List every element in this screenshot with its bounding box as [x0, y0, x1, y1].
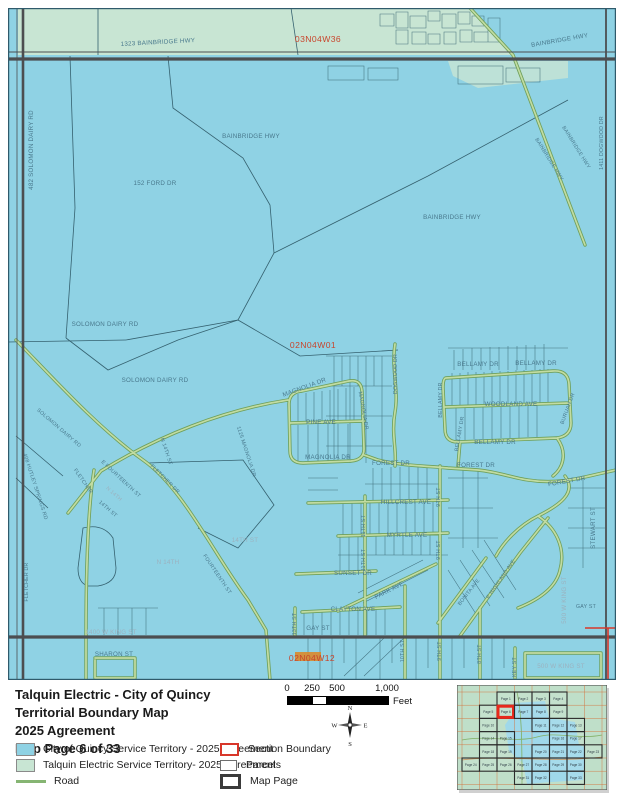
compass-rose: N S E W [330, 704, 370, 748]
street-label: BELLAMY DR [515, 360, 557, 367]
compass-s: S [348, 741, 352, 748]
inset-page-label: Page 12 [552, 723, 564, 727]
street-label: 8TH ST [477, 644, 483, 664]
street-label: WOODLAND AVE [485, 401, 538, 408]
street-label: MAGNOLIA DR [305, 454, 351, 461]
inset-page-label: Page 1 [501, 697, 511, 701]
inset-page-label: Page 3 [536, 697, 546, 701]
street-label: SOLOMON DAIRY RD [122, 377, 189, 384]
talquin-territory-swatch [16, 759, 35, 772]
address-label: 1400 W KING ST [85, 629, 136, 636]
compass-hub [348, 723, 352, 727]
legend-label: Parcels [246, 759, 281, 771]
address-label: 152 FORD DR [134, 180, 177, 187]
road-line-swatch [16, 780, 46, 783]
inset-page-label: Page 5 [483, 710, 493, 714]
scale-unit: Feet [393, 696, 412, 707]
street-label: MYRTLE AVE [387, 532, 428, 539]
street-label: BAINBRIDGE HWY [222, 133, 280, 140]
inset-page-label: Page 19 [500, 750, 512, 754]
inset-page-label: Page 4 [553, 697, 563, 701]
parcels-swatch [220, 760, 237, 771]
street-label: HILLCREST AVE [381, 499, 431, 506]
street-label: BELLAMY DR [474, 439, 516, 446]
inset-page-label: Page 31 [517, 776, 529, 780]
street-label: 9TH ST [436, 540, 442, 560]
street-label: 14TH ST [232, 537, 259, 544]
inset-page-label: Page 18 [482, 750, 494, 754]
title-line-3: 2025 Agreement [15, 722, 211, 740]
scale-tick: 1,000 [375, 683, 399, 694]
inset-page-label: Page 32 [535, 776, 547, 780]
legend-item-section-boundary: Section Boundary [220, 742, 331, 756]
inset-page-label: Page 28 [535, 763, 547, 767]
inset-page-label: Page 17 [570, 737, 582, 741]
inset-page-label: Page 10 [482, 723, 494, 727]
street-label: SUNSET DR [334, 570, 372, 577]
street-label: SOLOMON DAIRY RD [72, 321, 139, 328]
street-label: STEWART ST [590, 507, 597, 549]
inset-page-label: Page 13 [570, 723, 582, 727]
inset-page-label: Page 16 [552, 737, 564, 741]
street-label: 9TH ST [436, 487, 442, 507]
inset-page-label: Page 6 [501, 710, 511, 714]
street-label: GAY ST [306, 625, 330, 632]
street-label: 10TH ST [400, 639, 406, 662]
compass-w: W [331, 723, 338, 730]
title-line-1: Talquin Electric - City of Quincy [15, 686, 211, 704]
legend-label: Section Boundary [248, 743, 331, 755]
street-label: 11TH ST [361, 514, 367, 537]
street-label: 13TH ST [292, 612, 298, 635]
section-label: 02N04W01 [290, 340, 336, 350]
legend-item-map-page: Map Page [220, 774, 298, 788]
inset-page-label: Page 23 [587, 750, 599, 754]
legend-label: Road [54, 775, 79, 787]
compass-e: E [364, 723, 368, 730]
street-label: FLETCHER DR [24, 562, 30, 601]
street-label: 9TH ST [437, 641, 443, 661]
street-label: CLAYTON AVE [331, 606, 376, 613]
scale-tick: 250 [304, 683, 320, 694]
inset-page-label: Page 24 [465, 763, 477, 767]
inset-page-label: Page 11 [535, 723, 547, 727]
scale-tick: 500 [329, 683, 345, 694]
inset-index-map: Page 1Page 2Page 3Page 4Page 5Page 6Page… [457, 685, 607, 790]
map-canvas: 1323 BAINBRIDGE HWY 03N04W36 BAINBRIDGE … [8, 8, 616, 680]
inset-page-label: Page 15 [500, 737, 512, 741]
quincy-territory-swatch [16, 743, 35, 756]
map-document-page: 1323 BAINBRIDGE HWY 03N04W36 BAINBRIDGE … [0, 0, 624, 805]
street-label: N 14TH [157, 559, 180, 566]
street-label: FOREST DR [372, 460, 410, 467]
street-label: KEY ST [512, 656, 518, 676]
inset-page-label: Page 33 [570, 776, 582, 780]
address-label: 1411 DOGWOOD DR [599, 116, 605, 170]
inset-page-label: Page 2 [518, 697, 528, 701]
address-label: 500 W KING ST [561, 576, 568, 624]
inset-page-label: Page 9 [553, 710, 563, 714]
section-label: 02N04W12 [289, 653, 335, 663]
street-label: SHARON ST [95, 651, 133, 658]
inset-page-label: Page 8 [536, 710, 546, 714]
scale-tick: 0 [284, 683, 289, 694]
street-label: FOREST DR [457, 462, 495, 469]
map-page-swatch [220, 774, 241, 789]
inset-page-label: Page 22 [570, 750, 582, 754]
street-label: BAINBRIDGE HWY [423, 214, 481, 221]
inset-page-label: Page 29 [552, 763, 564, 767]
section-boundary-swatch [220, 743, 239, 756]
territory-talquin-strip [18, 8, 513, 55]
street-label: BELLAMY DR [457, 361, 499, 368]
address-label: 482 SOLOMON DAIRY RD [28, 110, 35, 190]
address-label: 500 W KING ST [537, 663, 585, 670]
compass-n: N [348, 705, 353, 712]
street-label: GAY ST [576, 604, 597, 610]
inset-page-label: Page 30 [570, 763, 582, 767]
inset-page-label: Page 26 [500, 763, 512, 767]
street-label: DOGWOOD DR [393, 354, 399, 394]
section-label: 03N04W36 [295, 34, 341, 44]
street-label: BELLAMY DR [438, 382, 444, 417]
legend-item-parcels: Parcels [220, 758, 281, 772]
inset-page-label: Page 7 [518, 710, 528, 714]
main-map: 1323 BAINBRIDGE HWY 03N04W36 BAINBRIDGE … [8, 8, 616, 680]
inset-page-label: Page 14 [482, 737, 494, 741]
inset-page-label: Page 25 [482, 763, 494, 767]
legend-label: Map Page [250, 775, 298, 787]
title-line-2: Territorial Boundary Map [15, 704, 211, 722]
inset-page-label: Page 21 [552, 750, 564, 754]
street-label: 11TH ST [361, 548, 367, 571]
inset-page-label: Page 20 [535, 750, 547, 754]
street-label: PINE AVE [306, 419, 336, 426]
legend-item-road: Road [16, 774, 79, 788]
inset-page-label: Page 27 [517, 763, 529, 767]
